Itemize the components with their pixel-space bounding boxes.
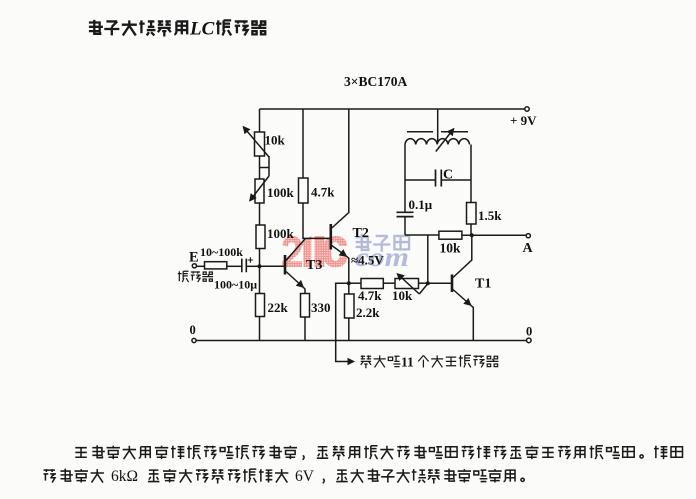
svg-text:100k: 100k (267, 185, 295, 200)
svg-text:4.7k: 4.7k (311, 185, 335, 200)
svg-text:10k: 10k (265, 133, 286, 148)
svg-text:T1: T1 (475, 277, 491, 292)
svg-text:A: A (523, 241, 534, 256)
svg-text:11: 11 (401, 355, 414, 370)
svg-text:+ 9V: + 9V (510, 113, 537, 128)
svg-text:4.7k: 4.7k (358, 288, 382, 303)
svg-text:T3: T3 (306, 258, 322, 273)
svg-text:22k: 22k (268, 300, 289, 315)
svg-text:100k: 100k (267, 226, 295, 241)
svg-text:C: C (443, 168, 453, 183)
svg-text:T2: T2 (353, 226, 369, 241)
svg-text:3×BC170A: 3×BC170A (344, 74, 407, 89)
svg-text:≈4.5V: ≈4.5V (351, 253, 384, 268)
svg-text:1.5k: 1.5k (478, 208, 502, 223)
svg-text:10k: 10k (392, 288, 413, 303)
svg-text:2.2k: 2.2k (356, 305, 380, 320)
svg-text:10k: 10k (440, 241, 462, 256)
svg-text:6V: 6V (295, 468, 315, 485)
svg-text:330: 330 (311, 300, 331, 315)
svg-text:0: 0 (190, 323, 196, 337)
svg-text:6kΩ: 6kΩ (111, 468, 138, 485)
svg-text:0.1μ: 0.1μ (409, 197, 433, 212)
svg-text:LC: LC (189, 19, 215, 40)
svg-text:100~10μ: 100~10μ (214, 278, 257, 292)
svg-text:E: E (189, 250, 199, 266)
svg-text:10~100k: 10~100k (200, 245, 243, 259)
svg-text:0: 0 (526, 325, 532, 339)
